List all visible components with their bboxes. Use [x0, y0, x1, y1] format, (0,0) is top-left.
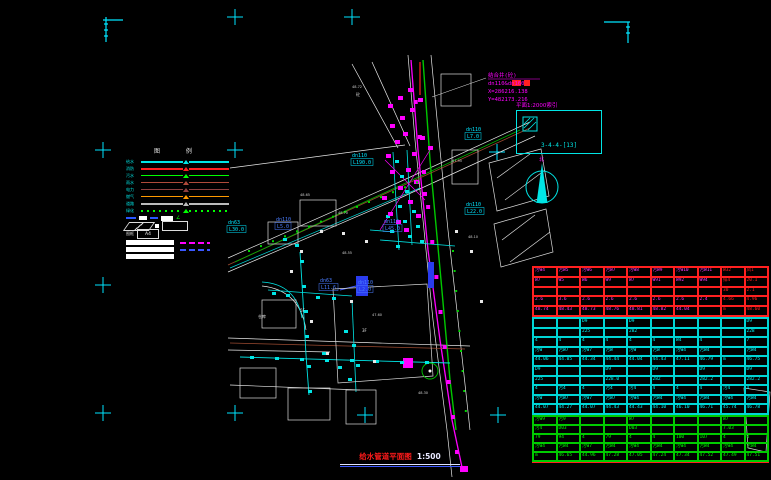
table-cell: 3.6: [557, 296, 581, 306]
water-well: [300, 358, 304, 361]
table-cell: [651, 425, 675, 434]
water-well: [283, 238, 287, 241]
tree-dot: [455, 290, 457, 292]
table-cell: 4: [745, 385, 769, 395]
table-cell: 污W: [604, 347, 628, 357]
pipe-end-well: [460, 466, 468, 472]
magenta-dash-icon: [180, 242, 210, 244]
rect-symbol-icon: [162, 221, 188, 231]
water-well: [325, 359, 329, 362]
water-well: [412, 210, 416, 213]
table-cell: 4: [580, 434, 604, 443]
tree-dot: [457, 310, 459, 312]
table-cell: 污W4: [651, 443, 675, 452]
legend-item-label: 绿化: [126, 208, 141, 214]
pipe-label-dn: dn110: [466, 127, 481, 133]
table-cell: 45.74: [721, 404, 745, 414]
pipe-label-dn: dn110: [358, 280, 373, 286]
title-underline: [340, 464, 460, 465]
table-cell: 44.43: [627, 404, 651, 414]
table-cell: 4: [580, 385, 604, 395]
table-cell: 20.1: [745, 277, 769, 287]
title-underline-2: [340, 466, 460, 467]
table-cell: [674, 287, 698, 297]
table-cell: 污4: [533, 425, 557, 434]
table-cell: W6: [580, 277, 604, 287]
water-well: [300, 260, 304, 263]
sewer-well-large: [403, 358, 413, 368]
table-cell: [580, 416, 604, 425]
table-cell: W7: [627, 277, 651, 287]
table-cell: 污W: [533, 395, 557, 405]
map-symbol: [290, 270, 293, 273]
sewer-well: [395, 140, 400, 144]
table-cell: 282: [651, 376, 675, 386]
table-cell: 44.44: [604, 356, 628, 366]
table-cell: 污W4: [557, 443, 581, 452]
north-label: 北: [539, 156, 544, 163]
table-cell: 44.34: [580, 356, 604, 366]
table-bottom-rule: [532, 462, 769, 463]
sewer-well: [428, 146, 433, 150]
table-cell: 47.28: [604, 452, 628, 461]
table-cell: W9: [604, 277, 628, 287]
table-cell: [698, 306, 722, 316]
table-cell: 4: [674, 385, 698, 395]
table-cell: 48.43: [557, 306, 581, 316]
table-cell: 2.6: [627, 296, 651, 306]
roads: [228, 55, 535, 477]
pipe-wells: [248, 88, 483, 454]
map-symbol: [300, 250, 303, 253]
map-symbol: [342, 232, 345, 235]
table-cell: D9: [604, 366, 628, 376]
table-cell: [651, 416, 675, 425]
pipe-label-length: L11.6: [321, 285, 336, 291]
table-cell: 污W4: [721, 395, 745, 405]
sheet-index-code: 3-4-4-[13]: [517, 142, 601, 149]
legend-item: 电力: [126, 186, 244, 193]
table-cell: 污W4: [604, 443, 628, 452]
table-cell: 4: [580, 337, 604, 347]
table-cell: [627, 287, 651, 297]
tree-dot: [368, 201, 370, 203]
table-cell: 2.6: [604, 296, 628, 306]
water-well: [395, 160, 399, 163]
table-cell: [627, 366, 651, 376]
spot-elevation: 48.72: [352, 85, 362, 89]
table-cell: 污W10: [674, 267, 698, 277]
table-cell: 污W: [627, 347, 651, 357]
water-well: [308, 390, 312, 393]
frame-bracket-top-right: [604, 22, 630, 43]
water-well: [307, 365, 311, 368]
legend-item-label: 电力: [126, 187, 141, 193]
utility-lines: [228, 60, 530, 472]
table-cell: 47.24: [651, 452, 675, 461]
title-text: 给水管道平面图: [359, 452, 412, 461]
sheet-index-frame: 3-4-4-[13]: [516, 110, 602, 154]
table-cell: [557, 287, 581, 297]
table-cell: [580, 376, 604, 386]
table-cell: 7: [745, 337, 769, 347]
table-cell: [557, 328, 581, 338]
legend-line-items: 给水消防污水雨水电力燃气道路绿化: [126, 158, 244, 214]
table-cell: 污W9: [651, 267, 675, 277]
table-cell: D9: [580, 318, 604, 328]
sewer-manhole: [418, 135, 422, 139]
table-cell: 污W9: [533, 416, 557, 425]
legend-line-swatch: [141, 210, 183, 212]
table-cell: [698, 287, 722, 297]
sewer-well: [406, 168, 411, 172]
table-cell: 48.74: [533, 306, 557, 316]
spot-elevation: 48.70: [338, 211, 348, 215]
water-well: [350, 359, 354, 362]
table-cell: W92: [674, 277, 698, 287]
square-symbol-icon: [155, 224, 159, 228]
table-cell: [721, 347, 745, 357]
table-band-0: 污W4污W5污W6污W7污W8污W9污W10污W11W32凤1W7W5W6W9W…: [532, 266, 769, 317]
manhole-elevation-table: 污W4污W5污W6污W7污W8污W9污W10污W11W32凤1W7W5W6W9W…: [532, 266, 769, 463]
sewer-well: [388, 104, 393, 108]
legend-frame-row: 图框 A4: [126, 230, 244, 238]
scale-bar: [126, 254, 174, 259]
table-cell: 44.07: [533, 404, 557, 414]
sewer-well: [398, 186, 403, 190]
table-cell: 4: [721, 434, 745, 443]
water-well: [396, 245, 400, 248]
tree-dot: [462, 370, 464, 372]
table-cell: [651, 328, 675, 338]
tree-dot: [332, 216, 334, 218]
box-symbol-icon: [161, 216, 173, 221]
table-cell: [604, 287, 628, 297]
table-cell: 44.04: [674, 306, 698, 316]
water-well: [405, 190, 409, 193]
water-well: [398, 205, 402, 208]
table-cell: 4: [533, 385, 557, 395]
table-cell: 47.34: [674, 452, 698, 461]
water-well: [420, 240, 424, 243]
pipe-label-dn: dn110: [384, 219, 399, 225]
legend-line-swatch: [189, 182, 229, 183]
table-cell: [604, 425, 628, 434]
sewer-well: [400, 116, 405, 120]
sewer-well: [408, 200, 413, 204]
pipe-label-dn: dn110: [352, 153, 367, 159]
table-cell: 4: [627, 337, 651, 347]
spot-elevation: 48.10: [468, 235, 478, 239]
sheet-index-header: 平面1:2000索引: [516, 101, 602, 109]
sewer-well: [410, 108, 415, 112]
table-cell: [533, 287, 557, 297]
legend-bar-row: [126, 247, 244, 252]
tree-dot: [308, 226, 310, 228]
legend-line-swatch: [141, 168, 183, 170]
table-cell: 污W4: [745, 395, 769, 405]
table-cell: 4.96: [745, 296, 769, 306]
legend-item-label: 燃气: [126, 194, 141, 200]
legend-line-swatch: [141, 196, 183, 197]
table-cell: [721, 366, 745, 376]
table-cell: 污W: [651, 347, 675, 357]
table-cell: 44.05: [557, 356, 581, 366]
table-cell: 47.05: [627, 452, 651, 461]
table-cell: [698, 318, 722, 328]
tree-dot: [392, 191, 394, 193]
water-well: [348, 378, 352, 381]
registration-cross: [489, 144, 505, 160]
legend-item-label: 消防: [126, 166, 141, 172]
cad-canvas: dn110L190.0dn63L30.0dn110L5.0dn110L45.0d…: [0, 0, 771, 480]
legend-bar-row: [126, 240, 244, 245]
legend-bar-row: [126, 254, 244, 259]
sewer-well: [418, 98, 423, 102]
table-cell: 污W7: [557, 347, 581, 357]
table-cell: 100: [674, 434, 698, 443]
map-symbol: [326, 352, 329, 355]
table-cell: [557, 318, 581, 328]
water-well: [408, 235, 412, 238]
table-cell: 4: [604, 337, 628, 347]
legend-line-swatch: [189, 210, 229, 212]
sewer-well: [390, 124, 395, 128]
sewer-well: [412, 152, 417, 156]
spot-elevation: 48.65: [300, 193, 310, 197]
map-symbol: [455, 230, 458, 233]
table-cell: 污W7: [580, 395, 604, 405]
legend-title: 图 例: [154, 146, 244, 155]
water-well: [272, 292, 276, 295]
table-cell: 污4: [604, 385, 628, 395]
table-cell: 44.04: [627, 356, 651, 366]
table-cell: 282: [627, 328, 651, 338]
table-cell: 48.76: [604, 306, 628, 316]
table-cell: D9: [651, 366, 675, 376]
table-cell: W7: [627, 416, 651, 425]
sewer-manhole: [422, 170, 426, 174]
table-cell: W7: [533, 277, 557, 287]
pipe-label-dn: dn110: [466, 202, 481, 208]
table-cell: 污W7: [580, 347, 604, 357]
map-symbol: [365, 240, 368, 243]
table-cell: [674, 425, 698, 434]
sewer-well: [422, 192, 427, 196]
tree-circle: [422, 363, 438, 379]
table-cell: [674, 328, 698, 338]
table-cell: [604, 318, 628, 328]
table-cell: [557, 366, 581, 376]
map-symbol: [470, 250, 473, 253]
table-cell: 2.4: [698, 296, 722, 306]
table-cell: [721, 318, 745, 328]
table-cell: 4: [698, 337, 722, 347]
drawing-title: 给水管道平面图 1:500: [340, 444, 460, 467]
table-cell: 46.78: [745, 404, 769, 414]
water-well: [295, 244, 299, 247]
tree-dot: [380, 196, 382, 198]
water-well: [403, 220, 407, 223]
table-cell: D9: [698, 366, 722, 376]
table-cell: 79: [604, 434, 628, 443]
legend-line-swatch: [189, 189, 229, 190]
hatched-square-icon: [522, 116, 542, 136]
water-well: [400, 361, 404, 364]
table-cell: 48.82: [651, 306, 675, 316]
table-cell: 4: [627, 434, 651, 443]
table-cell: 污4: [627, 385, 651, 395]
map-text-label: 仓库: [258, 313, 266, 319]
table-cell: [580, 287, 604, 297]
pipe-label-length: L7.0: [467, 134, 479, 140]
table-cell: 污W4: [745, 347, 769, 357]
legend-line-swatch: [189, 168, 229, 170]
table-cell: 47.11: [674, 356, 698, 366]
water-well: [400, 175, 404, 178]
legend-item: 雨水: [126, 179, 244, 186]
map-text-label: 砼: [356, 91, 360, 97]
sewer-manhole: [443, 345, 447, 349]
spot-elevation: 48.30: [418, 391, 428, 395]
table-cell: [721, 328, 745, 338]
table-cell: 282.2: [745, 376, 769, 386]
sewer-well: [404, 228, 409, 232]
table-cell: 2.6: [651, 296, 675, 306]
table-cell: [604, 328, 628, 338]
legend-item-label: 污水: [126, 173, 141, 179]
table-cell: [580, 366, 604, 376]
table-cell: 44.43: [651, 356, 675, 366]
table-cell: 228: [745, 328, 769, 338]
table-cell: [651, 318, 675, 328]
table-cell: 79: [533, 434, 557, 443]
water-well: [305, 335, 309, 338]
legend-line-swatch: [141, 182, 183, 183]
table-cell: 污W4: [745, 443, 769, 452]
table-cell: 94: [557, 434, 581, 443]
table-cell: 污W4: [674, 347, 698, 357]
table-cell: 48.81: [627, 306, 651, 316]
table-cell: 44.06: [533, 356, 557, 366]
legend-item-label: 道路: [126, 201, 141, 207]
legend-line-swatch: [141, 161, 183, 163]
table-cell: W91: [651, 277, 675, 287]
legend-item-label: 雨水: [126, 180, 141, 186]
legend-line-swatch: [141, 189, 183, 190]
table-cell: 污W4: [698, 395, 722, 405]
tree-dot: [458, 330, 460, 332]
table-cell: 225: [580, 328, 604, 338]
table-cell: 污W8: [627, 267, 651, 277]
blue-dash-icon: [150, 217, 158, 219]
table-cell: [745, 416, 769, 425]
table-cell: 46.75: [745, 356, 769, 366]
table-cell: 46.65: [557, 452, 581, 461]
registration-cross: [95, 405, 111, 421]
table-cell: 2.6: [580, 296, 604, 306]
table-cell: 46.79: [698, 356, 722, 366]
legend-line-swatch: [189, 196, 229, 197]
annotation-line: X=286216.138: [488, 89, 528, 95]
legend-item: 消防: [126, 165, 244, 172]
table-cell: W5: [557, 277, 581, 287]
table-cell: D03: [627, 425, 651, 434]
table-cell: 污W: [533, 347, 557, 357]
pipe-labels: dn110L190.0dn63L30.0dn110L5.0dn110L45.0d…: [227, 127, 484, 293]
water-well: [332, 297, 336, 300]
angle-mark-icon: ∠: [176, 216, 180, 221]
sewer-well: [382, 196, 387, 200]
table-cell: 污W5: [557, 267, 581, 277]
sheet-index-box: 平面1:2000索引 3-4-4-[13]: [516, 101, 602, 154]
water-well: [250, 356, 254, 359]
sewer-well: [408, 88, 413, 92]
table-cell: 48.73: [580, 306, 604, 316]
table-cell: 4: [651, 434, 675, 443]
table-cell: 44.27: [557, 404, 581, 414]
table-cell: [557, 376, 581, 386]
tree-dot: [260, 245, 262, 247]
pipe-label-length: L5.0: [277, 224, 289, 230]
table-cell: 污W4: [627, 395, 651, 405]
tree-dot: [356, 206, 358, 208]
sewer-well: [390, 170, 395, 174]
water-well: [425, 361, 429, 364]
table-cell: 污9: [557, 416, 581, 425]
map-symbol: [350, 300, 353, 303]
table-cell: 47.49: [721, 452, 745, 461]
sewer-well: [388, 212, 393, 216]
registration-cross: [227, 9, 243, 25]
legend-item: 道路: [126, 200, 244, 207]
map-symbol: [320, 230, 323, 233]
table-cell: 污W6: [580, 267, 604, 277]
table-cell: m: [533, 452, 557, 461]
table-cell: 污W4: [533, 443, 557, 452]
table-cell: 4: [557, 337, 581, 347]
table-cell: 4: [533, 337, 557, 347]
table-cell: W7: [721, 416, 745, 425]
table-cell: D03: [557, 425, 581, 434]
tree-dot: [296, 230, 298, 232]
legend-line-swatch: [141, 175, 183, 176]
sewer-well: [416, 214, 421, 218]
tree-dot: [454, 270, 456, 272]
map-text-label: 5F: [300, 308, 306, 313]
table-cell: [580, 425, 604, 434]
legend-item: 污水: [126, 172, 244, 179]
table-cell: 2.6: [533, 296, 557, 306]
table-cell: 44.43: [604, 404, 628, 414]
sewer-well: [398, 96, 403, 100]
table-cell: 污W7: [604, 395, 628, 405]
scale-bar: [126, 240, 174, 245]
table-cell: [674, 376, 698, 386]
scale-bar: [126, 247, 174, 252]
sewer-manhole: [451, 415, 455, 419]
table-cell: 污W7: [604, 267, 628, 277]
table-cell: 污W11: [698, 267, 722, 277]
table-cell: W32: [721, 267, 745, 277]
map-text-label: 3F: [362, 328, 368, 333]
tree-dot: [272, 240, 274, 242]
tree-dot: [404, 186, 406, 188]
registration-cross: [357, 407, 373, 423]
table-cell: 4: [651, 385, 675, 395]
table-cell: [674, 318, 698, 328]
table-cell: 污W4: [674, 395, 698, 405]
